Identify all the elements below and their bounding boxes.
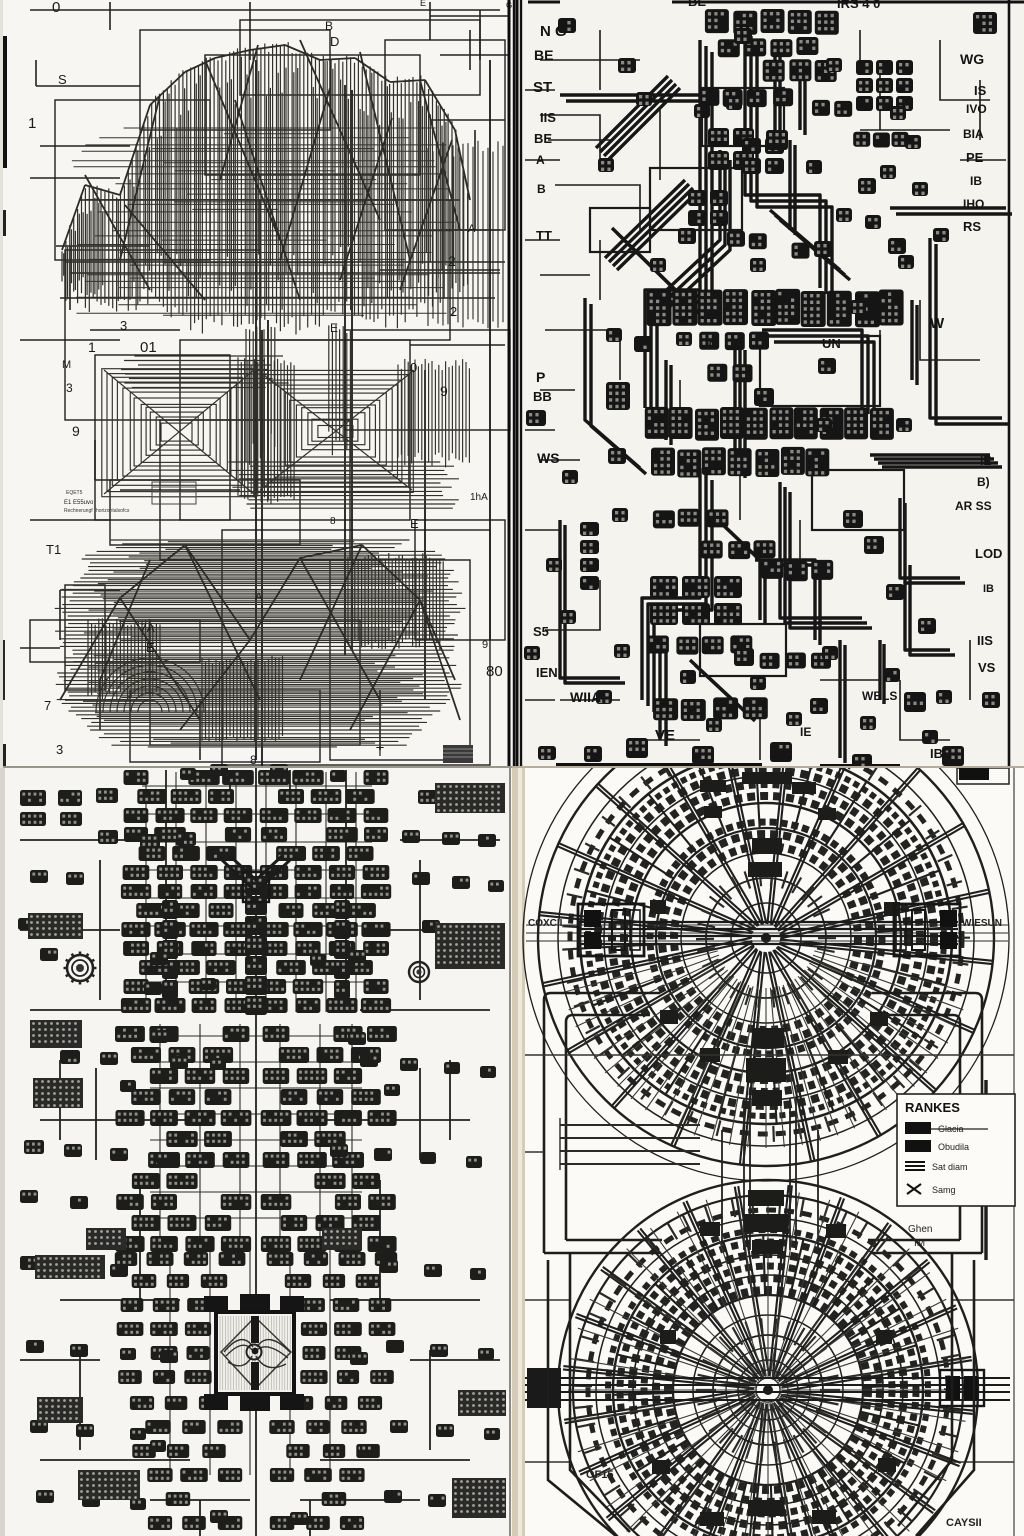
svg-text:A: A: [468, 223, 476, 235]
svg-text:IE: IE: [800, 725, 811, 739]
svg-text:Glacia: Glacia: [938, 1124, 964, 1134]
svg-text:2: 2: [448, 253, 456, 269]
svg-text:E: E: [410, 516, 419, 531]
svg-text:UN: UN: [822, 336, 841, 351]
svg-text:UN: UN: [700, 337, 717, 351]
svg-text:80: 80: [486, 663, 503, 680]
svg-text:S: S: [58, 72, 67, 87]
svg-text:B): B): [977, 475, 990, 489]
svg-text:Ghen: Ghen: [908, 1224, 932, 1235]
svg-text:0: 0: [410, 360, 417, 375]
svg-text:A: A: [255, 591, 263, 603]
svg-text:EQET5: EQET5: [66, 490, 83, 496]
svg-text:N G: N G: [540, 23, 567, 40]
svg-text:Obudila: Obudila: [938, 1142, 969, 1152]
svg-text:BE: BE: [688, 0, 706, 9]
svg-text:VS: VS: [978, 660, 996, 675]
svg-text:WG: WG: [960, 51, 984, 67]
svg-text:IVO: IVO: [966, 102, 987, 116]
svg-text:Sat diam: Sat diam: [932, 1162, 968, 1172]
svg-text:E: E: [330, 321, 338, 335]
svg-text:3: 3: [66, 381, 73, 395]
svg-text:T: T: [376, 744, 384, 759]
svg-text:M: M: [62, 359, 71, 371]
svg-text:3: 3: [56, 742, 63, 757]
svg-text:IB: IB: [970, 174, 982, 188]
svg-text:7: 7: [44, 698, 51, 713]
svg-text:D: D: [330, 34, 339, 49]
svg-text:P: P: [536, 369, 545, 385]
svg-text:VE: VE: [655, 727, 675, 744]
svg-text:3: 3: [120, 318, 127, 333]
svg-text:OF15: OF15: [586, 1469, 614, 1481]
svg-text:WIIA: WIIA: [570, 689, 601, 705]
svg-text:8: 8: [330, 516, 336, 527]
svg-text:BIA: BIA: [963, 127, 984, 141]
svg-text:S5: S5: [533, 624, 549, 639]
svg-text:1: 1: [28, 115, 36, 132]
svg-text:T1: T1: [46, 542, 61, 557]
svg-text:9: 9: [72, 423, 80, 439]
svg-text:E1 E55uvo: E1 E55uvo: [64, 500, 94, 506]
svg-text:2: 2: [450, 304, 457, 319]
svg-text:WBLS: WBLS: [862, 689, 897, 703]
svg-text:CAYSII: CAYSII: [946, 1517, 982, 1529]
svg-text:LOD: LOD: [975, 546, 1002, 561]
svg-text:AR SS: AR SS: [955, 499, 992, 513]
svg-text:E: E: [146, 640, 155, 655]
svg-text:IS: IS: [974, 83, 987, 98]
svg-text:WIESUN: WIESUN: [962, 918, 1002, 929]
svg-text:BE: BE: [534, 131, 552, 146]
svg-text:7A: 7A: [140, 621, 155, 635]
svg-text:W: W: [930, 315, 945, 332]
svg-text:IM: IM: [914, 1238, 925, 1249]
svg-text:TT: TT: [536, 228, 552, 243]
svg-text:Rechnerungf *horizontalsofcs: Rechnerungf *horizontalsofcs: [64, 508, 130, 514]
svg-text:9: 9: [482, 639, 488, 651]
svg-text:BE: BE: [534, 47, 553, 63]
svg-text:1hA: 1hA: [470, 492, 488, 503]
svg-text:WS: WS: [537, 450, 560, 466]
svg-text:IIS: IIS: [540, 110, 556, 125]
svg-text:COXCII: COXCII: [528, 918, 563, 929]
svg-text:IRS 4 0: IRS 4 0: [837, 0, 880, 11]
svg-text:ST: ST: [533, 79, 552, 96]
svg-text:IEN: IEN: [536, 665, 558, 680]
svg-text:IHO: IHO: [963, 197, 984, 211]
svg-text:9: 9: [440, 383, 448, 399]
svg-text:Samg: Samg: [932, 1185, 956, 1195]
svg-text:A: A: [536, 153, 545, 167]
svg-text:PE: PE: [966, 150, 984, 165]
svg-text:01: 01: [140, 339, 157, 356]
svg-text:IIS: IIS: [977, 633, 993, 648]
svg-text:E: E: [420, 0, 426, 8]
svg-text:RS: RS: [963, 219, 981, 234]
svg-text:1: 1: [88, 339, 96, 355]
svg-text:8: 8: [250, 753, 257, 767]
svg-text:IB: IB: [983, 583, 994, 595]
svg-text:B: B: [325, 19, 333, 33]
svg-text:RANKES: RANKES: [905, 1100, 960, 1115]
svg-text:0: 0: [52, 0, 60, 16]
svg-text:IBE: IBE: [930, 746, 952, 761]
svg-text:IE: IE: [980, 454, 991, 468]
svg-text:B: B: [537, 182, 546, 196]
svg-text:BB: BB: [533, 389, 552, 404]
